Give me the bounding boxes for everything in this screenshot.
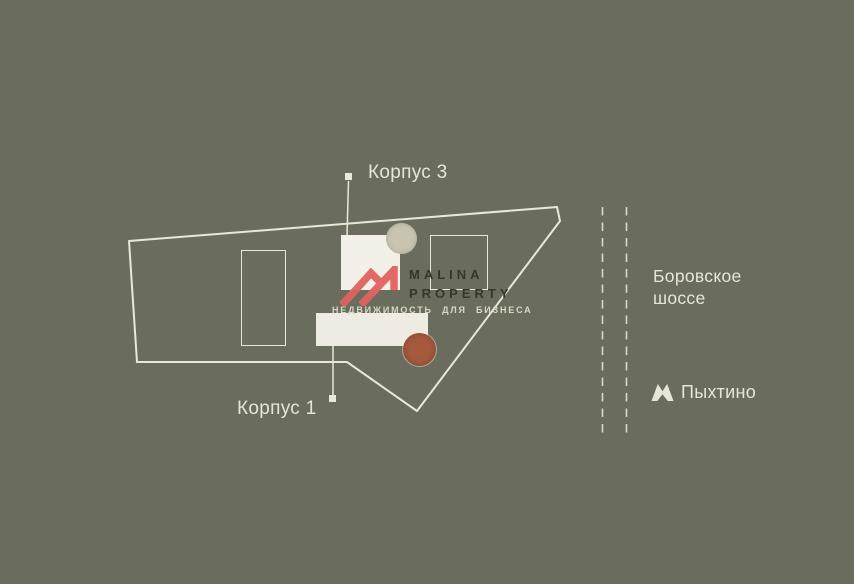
building-3-leader-line <box>347 181 349 236</box>
building-3-label: Корпус 3 <box>368 162 448 184</box>
watermark-brand-line2: PROPERTY <box>409 286 513 301</box>
watermark-brand-line1: MALINA <box>409 267 484 282</box>
road-label-line2: шоссе <box>653 287 742 309</box>
terracotta-circle-accent <box>403 333 436 366</box>
metro-logo-icon <box>651 384 674 401</box>
building-1-marker <box>329 395 336 402</box>
metro-station: Пыхтино <box>651 382 756 403</box>
road-label: Боровское шоссе <box>653 265 742 309</box>
malina-logo-icon <box>338 266 405 306</box>
building-3-marker <box>345 173 352 180</box>
beige-circle-accent <box>386 223 417 254</box>
watermark: MALINA PROPERTY НЕДВИЖИМОСТЬ ДЛЯ БИЗНЕСА <box>332 264 522 318</box>
watermark-tagline: НЕДВИЖИМОСТЬ ДЛЯ БИЗНЕСА <box>332 305 532 315</box>
metro-station-label: Пыхтино <box>681 382 756 403</box>
site-plan-canvas: Корпус 3 Корпус 1 Боровское шоссе Пыхтин… <box>0 0 854 584</box>
road-label-line1: Боровское <box>653 265 742 287</box>
building-1-label: Корпус 1 <box>237 398 317 420</box>
outlined-building-left <box>241 250 286 346</box>
